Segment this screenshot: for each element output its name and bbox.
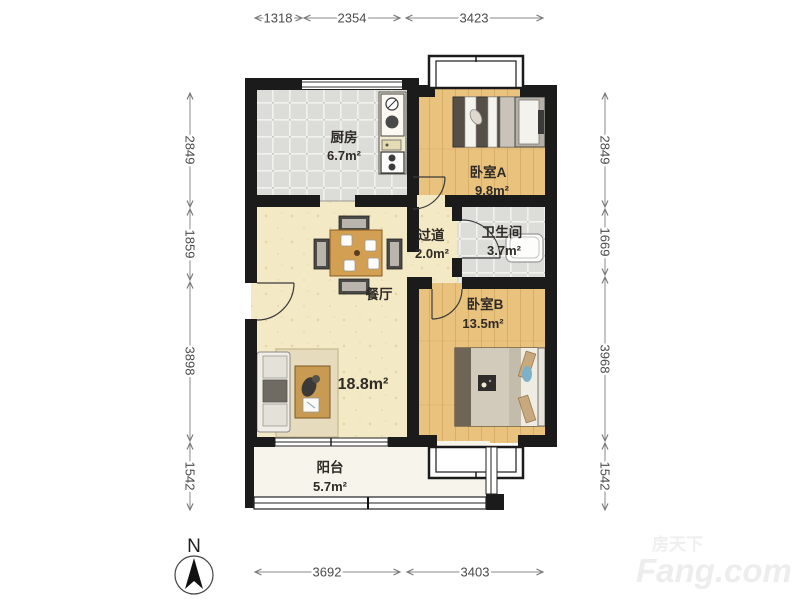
watermark-en: Fang.com: [636, 552, 792, 589]
bedroom-b-label: 卧室B: [467, 296, 504, 312]
balcony-slider-icon: [275, 438, 388, 446]
bathroom-label: 卫生间: [482, 224, 523, 240]
dim-right-1: 2849: [598, 136, 613, 165]
hallway-area: 2.0m²: [415, 246, 450, 261]
bathroom-area: 3.7m²: [487, 243, 522, 258]
coffee-table-icon: [295, 366, 330, 418]
wardrobe-a-icon: [515, 97, 545, 147]
floor-plan-svg: 厨房 6.7m² 卧室A 9.8m² 过道 2.0m² 卫生间 3.7m² 餐厅…: [0, 0, 800, 600]
balcony-window-right-icon: [486, 447, 497, 494]
compass-label: N: [187, 536, 201, 557]
floor-plan-page: 厨房 6.7m² 卧室A 9.8m² 过道 2.0m² 卫生间 3.7m² 餐厅…: [0, 0, 800, 600]
dim-left-4: 1542: [183, 462, 198, 491]
bay-window-bottom-icon: [429, 447, 523, 478]
dim-top-2: 2354: [338, 11, 367, 26]
kitchen-area: 6.7m²: [327, 148, 362, 163]
hallway-label: 过道: [418, 227, 445, 243]
kitchen-label: 厨房: [331, 129, 358, 145]
dim-right-2: 1669: [598, 228, 613, 257]
balcony-window-bottom-icon: [254, 497, 486, 509]
dim-bottom-2: 3403: [461, 565, 490, 580]
bedroom-a-area: 9.8m²: [475, 183, 510, 198]
bedroom-a-label: 卧室A: [470, 164, 507, 180]
sofa-icon: [257, 352, 290, 432]
dim-top-3: 3423: [460, 11, 489, 26]
kitchen-window-icon: [302, 80, 402, 89]
dim-bottom-1: 3692: [313, 565, 342, 580]
dim-left-3: 3898: [183, 347, 198, 376]
dim-right-4: 1542: [598, 462, 613, 491]
dim-left-2: 1859: [183, 230, 198, 259]
bed-a-icon: [453, 97, 515, 147]
dim-left-1: 2849: [183, 136, 198, 165]
dim-top-1: 1318: [264, 11, 293, 26]
living-area: 18.8m²: [338, 376, 389, 393]
watermark: 房天下 Fang.com: [636, 534, 792, 589]
dining-label: 餐厅: [365, 286, 393, 302]
watermark-cn: 房天下: [652, 534, 703, 554]
bedroom-b-area: 13.5m²: [462, 316, 504, 331]
balcony-area: 5.7m²: [313, 479, 348, 494]
compass: N: [175, 536, 213, 594]
dim-right-3: 3968: [598, 345, 613, 374]
bay-window-top-icon: [429, 56, 523, 88]
kitchen-counter-icon: [379, 92, 406, 174]
bed-b-icon: [455, 348, 545, 426]
balcony-label: 阳台: [317, 459, 344, 475]
